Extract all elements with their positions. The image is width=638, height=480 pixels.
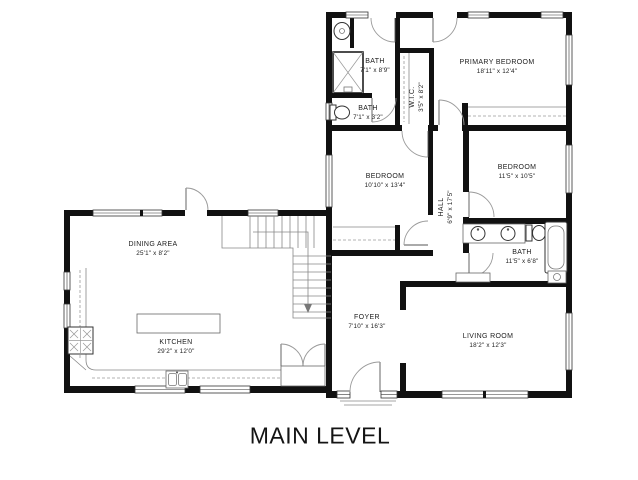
bathtub-icon [545,222,567,273]
front-door [350,362,380,392]
bedroom-right-door [469,192,494,217]
stair-direction-line [253,232,308,306]
floor-plan-page: BATH7'1" x 8'9" BATH7'1" x 3'2" W.I.C.3'… [0,0,638,480]
kitchen-sink-icon [166,371,188,388]
bath-ensuite-door [371,18,395,42]
bedroom-middle-hall-door [404,221,428,245]
water-heater-icon [548,271,566,283]
toilet-icon-half-bath [330,105,350,120]
primary-hall-door [439,100,464,125]
kitchen-closet-double-doors [281,344,325,366]
kitchen-island [137,314,220,333]
dining-exterior-door [186,188,208,210]
staircase [222,216,331,318]
primary-top-door [433,18,457,42]
stove-icon [68,327,93,354]
floor-plan-drawing [0,0,638,480]
kitchen-fixtures [68,268,325,388]
double-vanity-icon [463,224,525,243]
bath-half-door [372,98,396,122]
closets [333,53,566,240]
linen-closet [456,273,490,282]
plan-title: MAIN LEVEL [250,423,391,450]
front-steps [340,401,396,405]
bedroom-middle-top-door [402,131,428,157]
bathroom-fixtures [330,23,567,284]
pedestal-sink-icon [334,23,350,40]
toilet-icon-main-bath [526,225,546,241]
shower-icon [333,52,363,93]
exterior-walls [64,12,572,398]
windows [64,12,572,398]
kitchen-closet [281,366,325,386]
